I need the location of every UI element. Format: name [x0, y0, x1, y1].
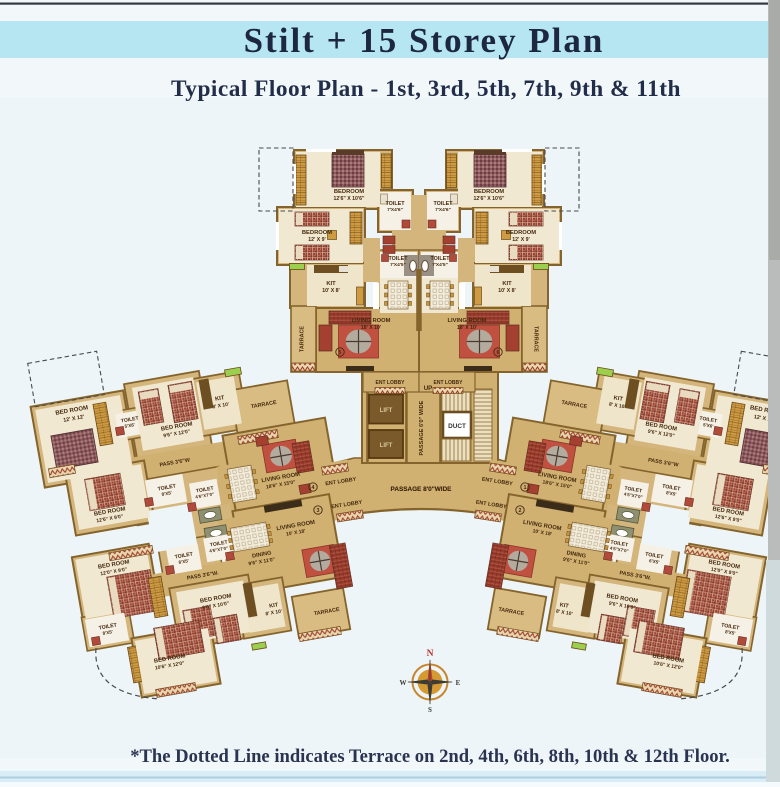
svg-text:ENT LOBBY: ENT LOBBY: [376, 380, 406, 386]
svg-text:UP: UP: [424, 385, 433, 392]
svg-text:6: 6: [497, 350, 500, 356]
svg-text:18' X 10': 18' X 10': [361, 325, 381, 331]
svg-text:1: 1: [524, 485, 527, 491]
svg-text:2: 2: [519, 508, 522, 514]
svg-text:Typical Floor Plan - 1st, 3rd,: Typical Floor Plan - 1st, 3rd, 5th, 7th,…: [171, 76, 681, 102]
svg-text:BEDROOM: BEDROOM: [474, 189, 504, 195]
svg-text:7'X4'6": 7'X4'6": [435, 207, 451, 213]
svg-text:TARRACE: TARRACE: [300, 326, 306, 352]
svg-text:E: E: [456, 679, 461, 687]
svg-text:4: 4: [312, 485, 315, 491]
svg-text:BEDROOM: BEDROOM: [334, 189, 364, 195]
svg-text:10' X 8': 10' X 8': [498, 288, 515, 294]
svg-text:PASSAGE 8'0"WIDE: PASSAGE 8'0"WIDE: [391, 486, 453, 493]
svg-text:ENT LOBBY: ENT LOBBY: [434, 380, 464, 386]
svg-text:TOILET: TOILET: [385, 201, 405, 207]
svg-text:10' X 8': 10' X 8': [322, 288, 339, 294]
svg-text:7'X4'5": 7'X4'5": [390, 262, 406, 268]
svg-text:KIT: KIT: [326, 281, 336, 287]
svg-text:12'6" X 10'6": 12'6" X 10'6": [333, 196, 365, 202]
svg-text:7'X4'5": 7'X4'5": [432, 262, 448, 268]
svg-text:TOILET: TOILET: [430, 256, 450, 262]
svg-text:S: S: [428, 706, 432, 714]
svg-text:12'6" X 10'6": 12'6" X 10'6": [473, 196, 505, 202]
svg-text:TOILET: TOILET: [388, 256, 408, 262]
svg-text:7'X4'6": 7'X4'6": [387, 207, 403, 213]
svg-text:TOILET: TOILET: [433, 201, 453, 207]
svg-text:18' X 10': 18' X 10': [457, 325, 477, 331]
svg-text:3: 3: [317, 508, 320, 514]
svg-text:LIFT: LIFT: [380, 408, 393, 414]
svg-text:5: 5: [339, 350, 342, 356]
svg-text:TARRACE: TARRACE: [533, 326, 539, 352]
svg-text:N: N: [427, 649, 434, 659]
svg-text:*The Dotted Line indicates Ter: *The Dotted Line indicates Terrace on 2n…: [130, 746, 730, 767]
svg-text:BEDROOM: BEDROOM: [506, 230, 536, 236]
svg-text:PASSAGE 6'0" WIDE: PASSAGE 6'0" WIDE: [419, 400, 425, 455]
svg-text:LIVING ROOM: LIVING ROOM: [352, 318, 391, 324]
svg-text:DUCT: DUCT: [448, 423, 466, 430]
svg-text:LIFT: LIFT: [380, 443, 393, 449]
svg-text:12' X 9': 12' X 9': [512, 237, 529, 243]
svg-text:KIT: KIT: [502, 281, 512, 287]
svg-text:LIVING ROOM: LIVING ROOM: [448, 318, 487, 324]
svg-text:12' X 9': 12' X 9': [308, 237, 325, 243]
svg-text:Stilt + 15 Storey Plan: Stilt + 15 Storey Plan: [244, 21, 605, 60]
svg-text:W: W: [400, 679, 407, 687]
svg-text:BEDROOM: BEDROOM: [302, 230, 332, 236]
